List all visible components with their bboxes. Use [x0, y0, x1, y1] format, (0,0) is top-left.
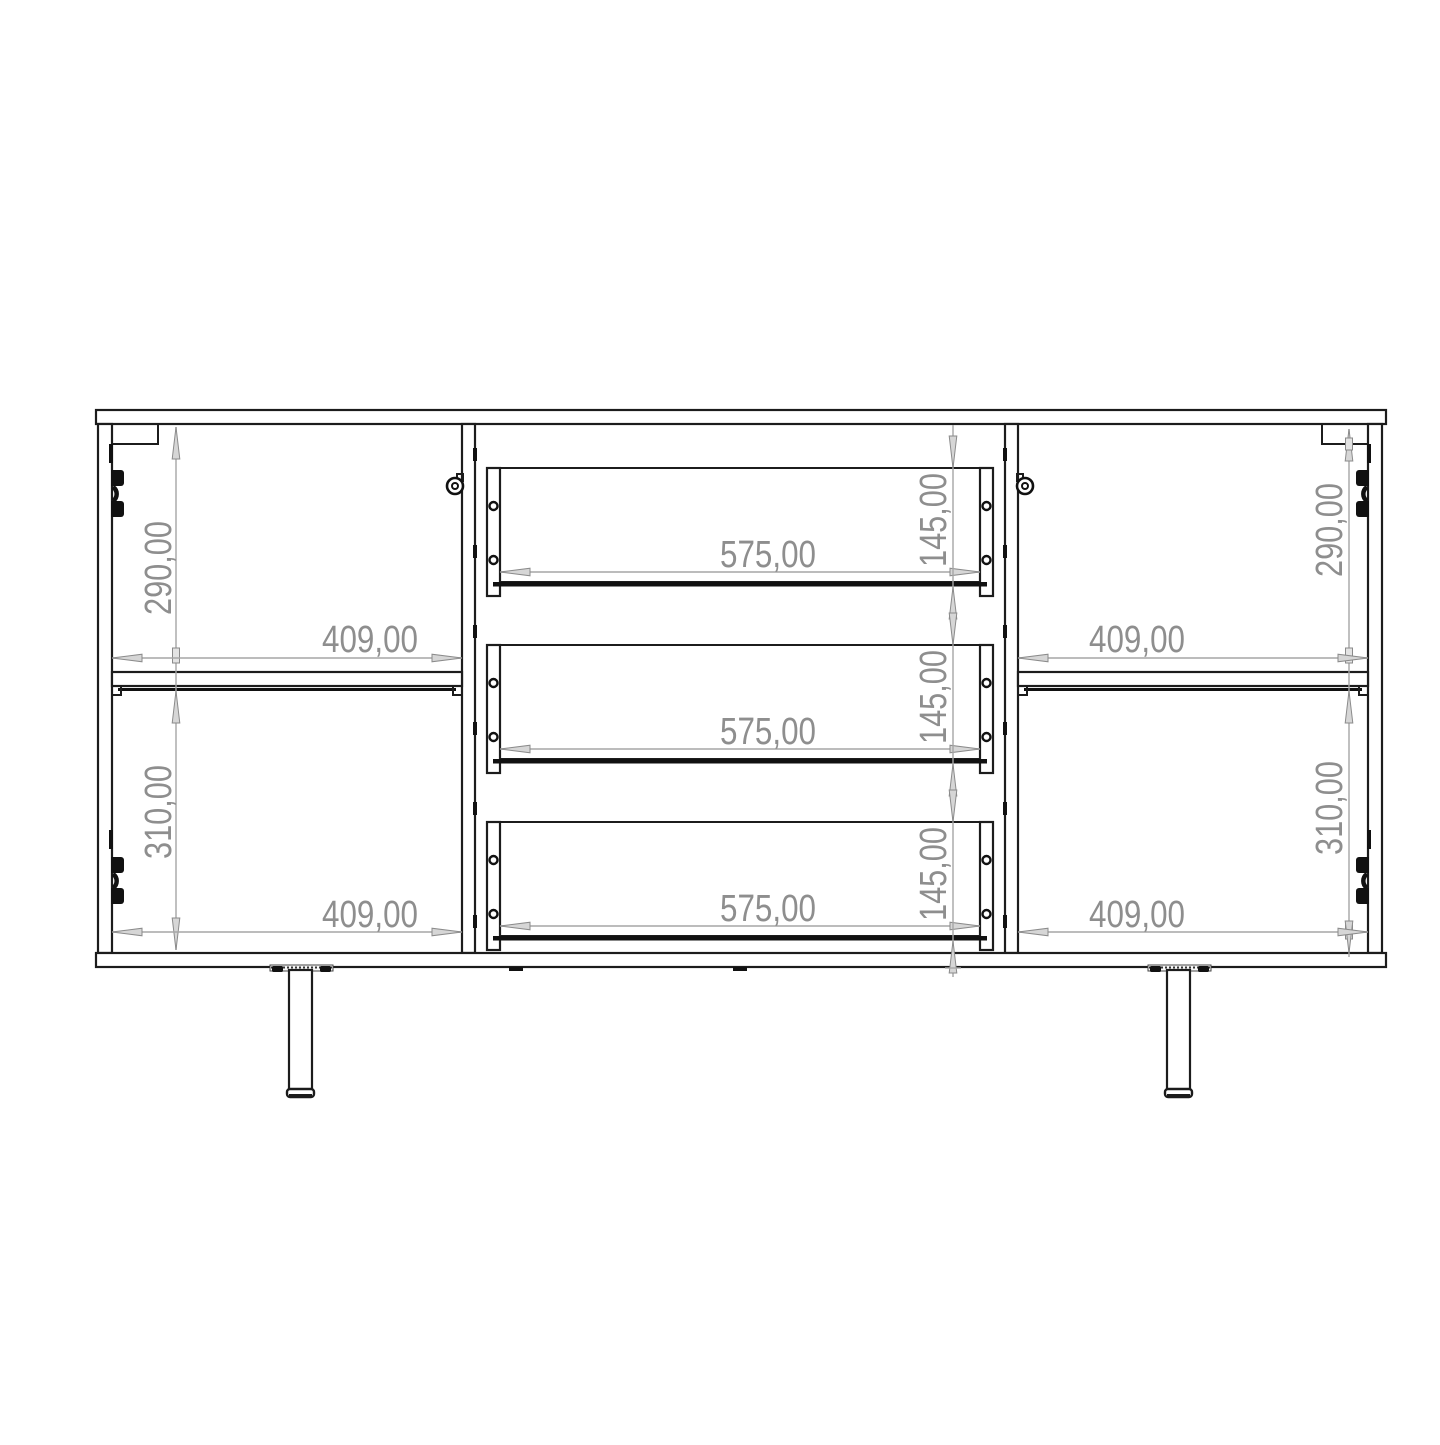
- right-divider-damper-knob: [1017, 474, 1033, 494]
- leg-screw: [272, 966, 283, 972]
- bottom-fitting-mark: [733, 967, 747, 971]
- divider-fitting-mark: [473, 722, 477, 735]
- dimension-label-drawer1-width: 575,00: [720, 534, 816, 576]
- leg-body: [289, 970, 312, 1091]
- left-divider-damper-knob: [447, 474, 463, 494]
- divider-fitting-mark: [473, 915, 477, 928]
- left-leg: [270, 965, 333, 1097]
- dimension-label-drawer2-height: 145,00: [913, 650, 955, 744]
- divider-fitting-mark: [1003, 448, 1007, 461]
- dimensions: 290,00 310,00 290,00 310,00 409,00 409,0…: [112, 425, 1368, 977]
- right-side-panel: [1368, 424, 1382, 953]
- drawer-bottom-bar: [493, 759, 987, 764]
- right-leg: [1148, 965, 1211, 1097]
- furniture-elevation-drawing: 290,00 310,00 290,00 310,00 409,00 409,0…: [0, 0, 1440, 1440]
- dimension-label-left-top-width: 409,00: [322, 619, 418, 661]
- bottom-fitting-mark: [509, 967, 523, 971]
- dimension-arrow: [172, 691, 180, 723]
- divider-fitting-mark: [1003, 802, 1007, 815]
- left-wall-fitting-mark: [109, 444, 113, 463]
- shelf-board: [112, 672, 462, 686]
- dimension-label-right-top-width: 409,00: [1089, 619, 1185, 661]
- left-compartment-shelf: [112, 672, 462, 695]
- dimension-label-right-top-height: 290,00: [1309, 483, 1351, 577]
- divider-fitting-mark: [1003, 915, 1007, 928]
- right-divider-panel: [1005, 424, 1018, 953]
- divider-fitting-mark: [1003, 545, 1007, 558]
- dimension-label-left-top-height: 290,00: [138, 521, 180, 615]
- dimension-arrow: [172, 427, 180, 459]
- drawer-left-rail: [487, 822, 500, 950]
- leg-body: [1167, 970, 1190, 1091]
- dimension-label-right-bottom-width: 409,00: [1089, 894, 1185, 936]
- drawer-bottom-bar: [493, 582, 987, 587]
- dimension-label-left-bottom-width: 409,00: [322, 894, 418, 936]
- drawer-right-rail: [980, 645, 993, 773]
- drawer-left-rail: [487, 645, 500, 773]
- divider-fitting-mark: [473, 448, 477, 461]
- dimension-arrow: [172, 918, 180, 950]
- dimension-label-drawer1-height: 145,00: [913, 473, 955, 567]
- divider-fitting-mark: [473, 625, 477, 638]
- shelf-front-edge: [1024, 688, 1362, 691]
- top-panel: [96, 410, 1386, 424]
- dimension-label-drawer3-width: 575,00: [720, 888, 816, 930]
- drawer-bottom-bar: [493, 936, 987, 941]
- leg-screw: [1150, 966, 1161, 972]
- divider-fitting-mark: [1003, 625, 1007, 638]
- drawer-left-rail: [487, 468, 500, 596]
- drawer-right-rail: [980, 468, 993, 596]
- right-wall-fitting-mark: [1367, 444, 1371, 463]
- dimension-arrow: [1345, 691, 1353, 723]
- dimension-terminator: [1346, 438, 1353, 450]
- right-wall-fitting-mark: [1367, 830, 1371, 849]
- divider-fitting-mark: [473, 545, 477, 558]
- leg-screw: [1198, 966, 1209, 972]
- dimension-label-left-bottom-height: 310,00: [138, 765, 180, 859]
- dimension-label-right-bottom-height: 310,00: [1309, 761, 1351, 855]
- dimension-terminator: [173, 648, 180, 663]
- shelf-front-edge: [118, 688, 456, 691]
- dimension-label-drawer3-height: 145,00: [913, 827, 955, 921]
- drawer-right-rail: [980, 822, 993, 950]
- divider-fitting-mark: [1003, 722, 1007, 735]
- left-side-panel: [98, 424, 112, 953]
- dimension-label-drawer2-width: 575,00: [720, 711, 816, 753]
- left-divider-panel: [462, 424, 475, 953]
- divider-fitting-mark: [473, 802, 477, 815]
- top-left-corner-block: [112, 424, 158, 444]
- left-wall-fitting-mark: [109, 830, 113, 849]
- shelf-board: [1018, 672, 1368, 686]
- drawing-canvas: 290,00 310,00 290,00 310,00 409,00 409,0…: [0, 0, 1440, 1440]
- right-compartment-shelf: [1018, 672, 1368, 695]
- leg-screw: [320, 966, 331, 972]
